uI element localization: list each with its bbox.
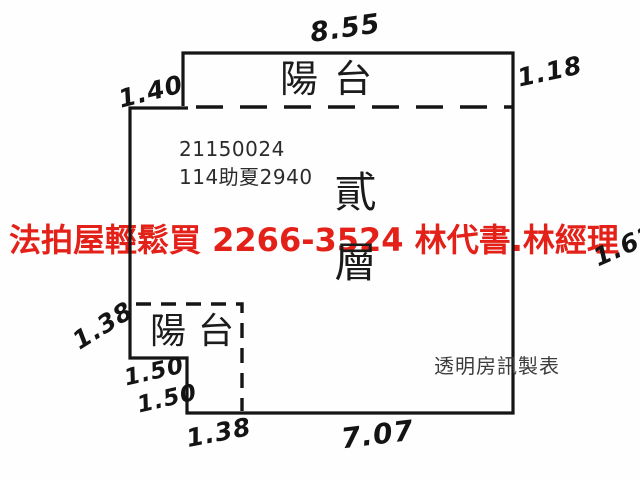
case-number-block: 21150024 114助夏2940 xyxy=(179,135,313,191)
maker-credit-label: 透明房訊製表 xyxy=(434,356,560,376)
balcony-top-label: 陽台 xyxy=(280,60,388,98)
case-number-line1: 21150024 xyxy=(179,135,313,163)
measurement-bottom: 7.07 xyxy=(340,417,416,454)
floor-level-label: 貳層 xyxy=(331,170,373,310)
case-number-line2: 114助夏2940 xyxy=(179,163,313,191)
balcony-bottom-label: 陽台 xyxy=(150,314,246,350)
floorplan-page: 法拍屋輕鬆買 2266-3524 林代書.林經理 陽台 陽台 21150024 … xyxy=(0,0,640,480)
